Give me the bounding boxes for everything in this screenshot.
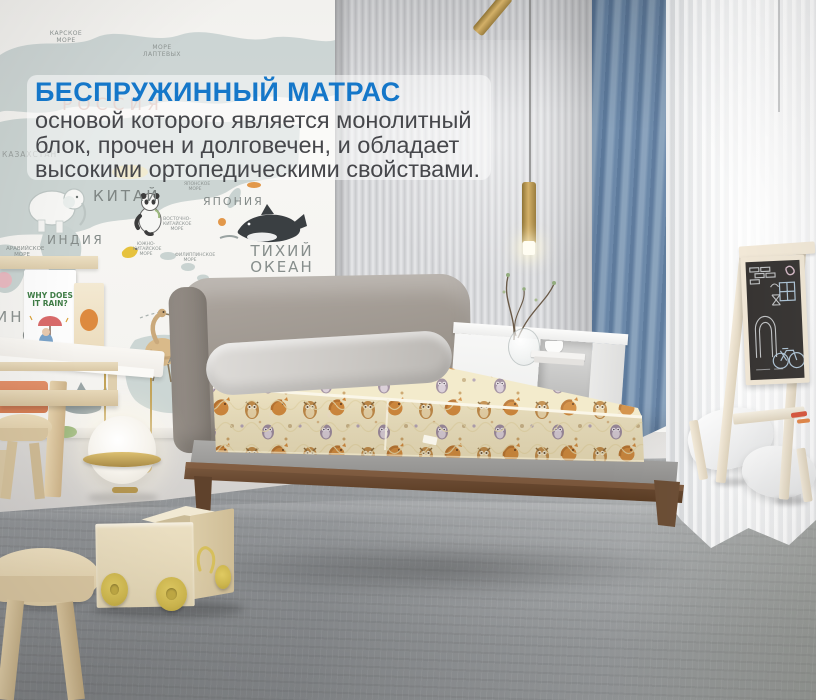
chalk-drawings xyxy=(745,260,804,380)
map-label-kara-sea: КАРСКОЕ МОРЕ xyxy=(48,30,84,44)
overlay-line-3: высокими ортопедическими свойствами. xyxy=(35,157,481,182)
overlay-line-1: основой которого является монолитный xyxy=(35,108,481,133)
toy-cart-wheel xyxy=(101,573,128,606)
map-label-sea-of-japan: ЯПОНСКОЕ МОРЕ xyxy=(184,182,206,192)
map-label-laptev-sea: МОРЕ ЛАПТЕВЫХ xyxy=(142,44,182,58)
kids-bedroom-photo: КАРСКОЕ МОРЕ МОРЕ ЛАПТЕВЫХ РОССИЯ КАЗАХС… xyxy=(0,0,816,700)
marketing-text-card: БЕСПРУЖИННЫЙ МАТРАС основой которого явл… xyxy=(27,75,491,180)
overlay-line-2: блок, прочен и долговечен, и обладает xyxy=(35,133,481,158)
map-label-japan: ЯПОНИЯ xyxy=(203,195,264,208)
pendant-cable xyxy=(529,0,531,184)
toy-cart-wheel xyxy=(215,565,231,589)
map-label-south-china-sea: ЮЖНО-КИТАЙСКОЕ МОРЕ xyxy=(133,242,159,257)
map-label-east-china-sea: ВОСТОЧНО-КИТАЙСКОЕ МОРЕ xyxy=(163,217,191,232)
map-label-philippine-sea: ФИЛИППИНСКОЕ МОРЕ xyxy=(175,253,205,263)
shelf-front-rail xyxy=(0,362,118,371)
chalkboard xyxy=(740,255,810,386)
window-frame-edge xyxy=(778,0,780,112)
starfish-accent xyxy=(218,218,226,226)
book-title: WHY DOES IT RAIN? xyxy=(24,292,76,308)
map-label-pacific-ocean: ТИХИЙ ОКЕАН xyxy=(250,243,314,275)
overlay-title: БЕСПРУЖИННЫЙ МАТРАС xyxy=(35,77,481,108)
map-label-china: КИТАЙ xyxy=(93,187,161,205)
book-cover-blob xyxy=(80,309,98,331)
large-stool-side xyxy=(0,576,94,602)
pink-chalk-scribble xyxy=(786,266,795,275)
wooden-stool-side xyxy=(0,428,48,441)
pendant-lamp xyxy=(522,182,536,244)
floor-lamp-brass-ring xyxy=(83,452,161,467)
map-label-india: ИНДИЯ xyxy=(47,233,104,247)
lamp-shadow xyxy=(88,492,158,503)
wheel-hub xyxy=(110,584,120,596)
orca-illustration xyxy=(220,204,307,242)
upper-shelf-rail xyxy=(0,256,98,269)
floor-lamp-sphere xyxy=(88,416,156,484)
shelf-board xyxy=(0,390,118,406)
island-1 xyxy=(160,252,176,260)
wheel-hub xyxy=(166,588,177,600)
island-2 xyxy=(181,263,195,271)
floor-lamp-foot xyxy=(112,487,138,493)
toy-cart-wheel xyxy=(156,577,187,611)
fish-accent xyxy=(247,182,261,188)
